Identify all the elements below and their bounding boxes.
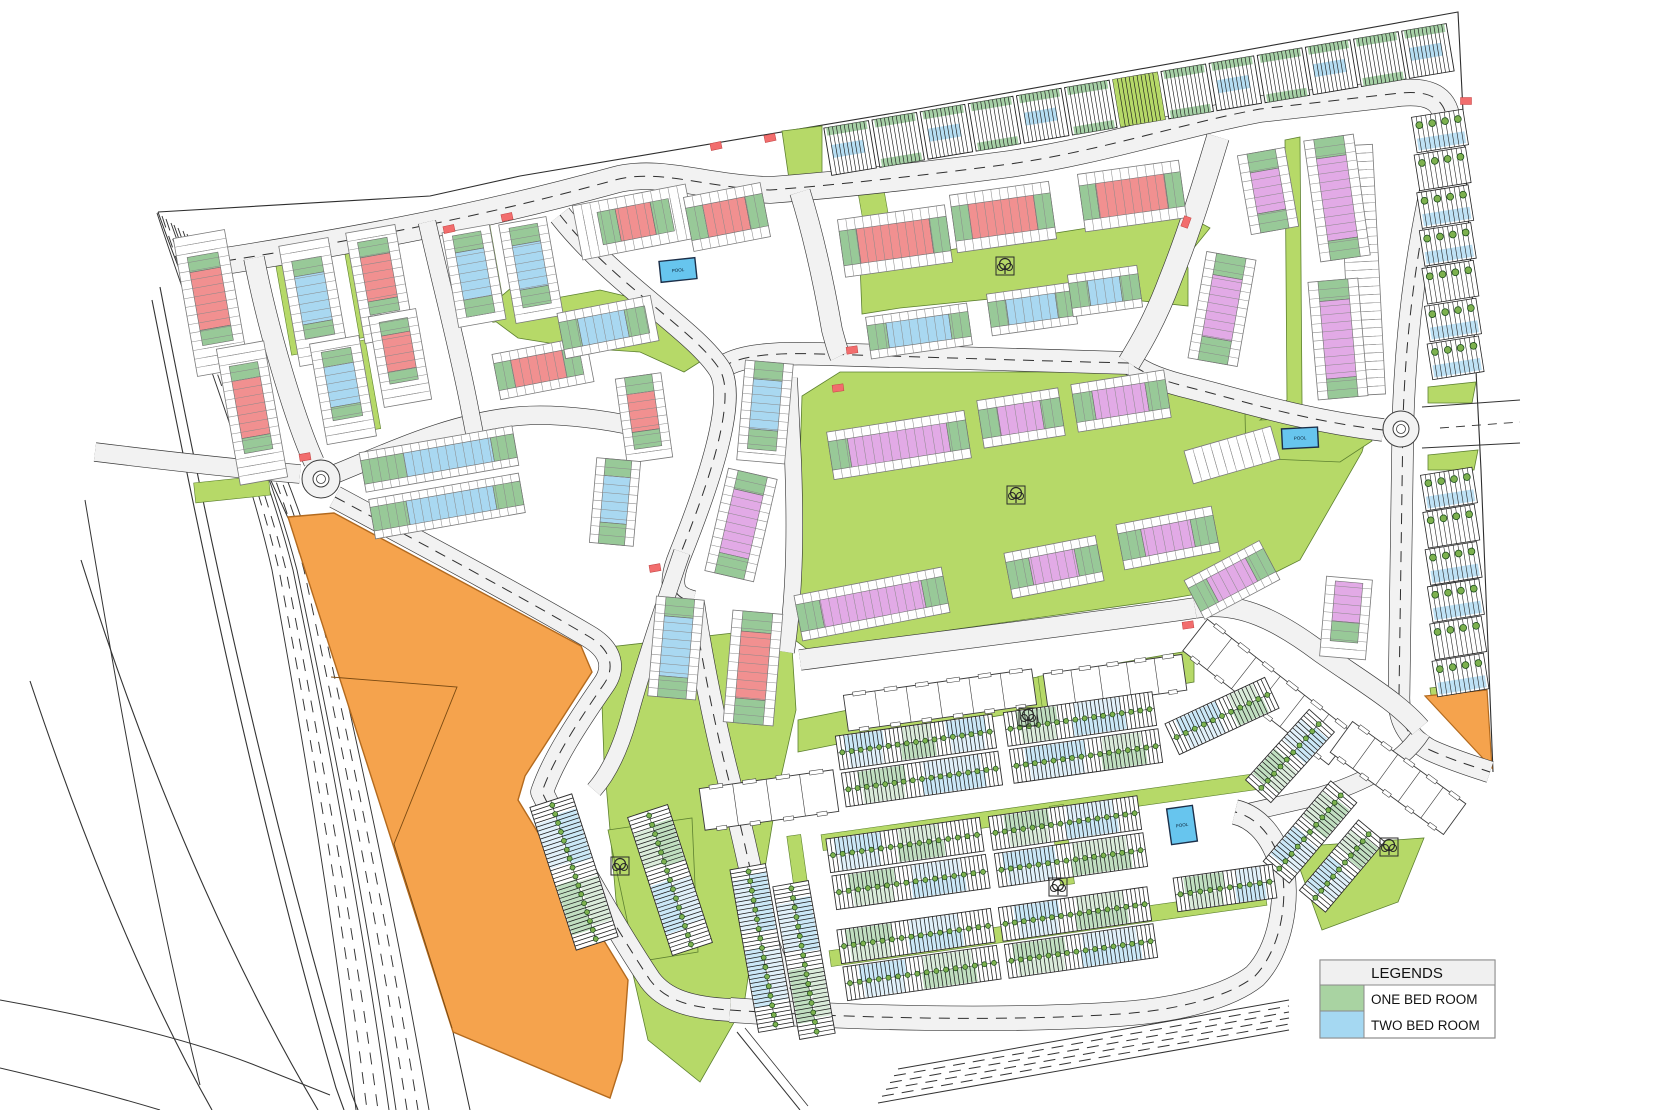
svg-text:TWO BED ROOM: TWO BED ROOM (1371, 1018, 1480, 1033)
svg-text:LEGENDS: LEGENDS (1371, 965, 1443, 982)
svg-text:ONE BED ROOM: ONE BED ROOM (1371, 992, 1478, 1007)
svg-text:POOL: POOL (1294, 435, 1307, 441)
